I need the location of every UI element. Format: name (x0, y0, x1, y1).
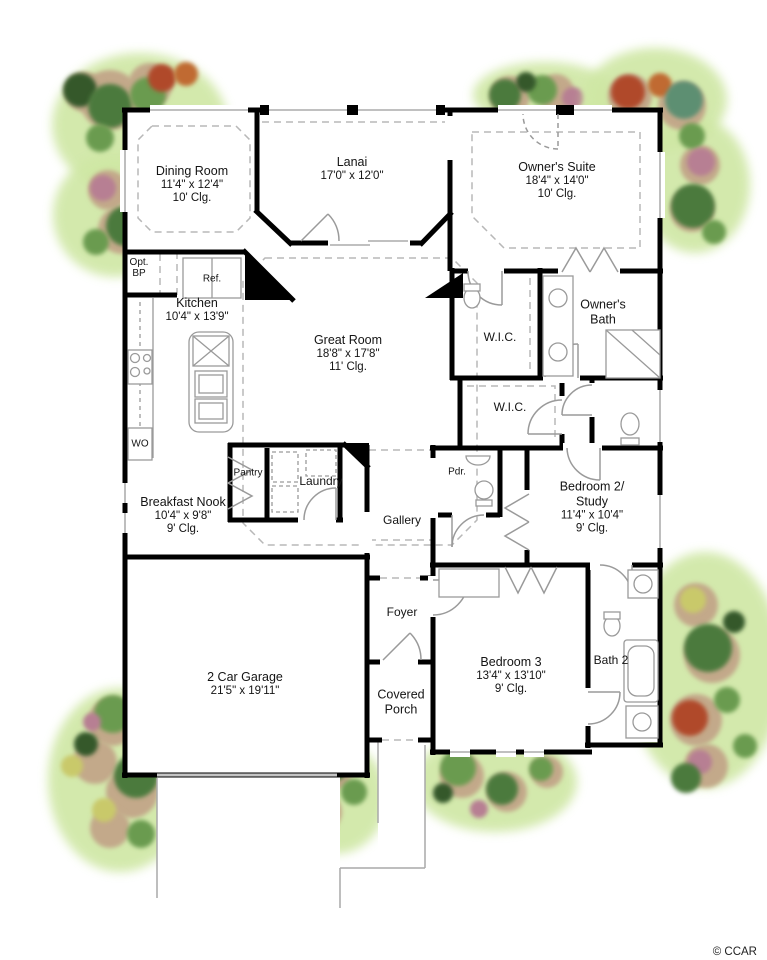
copyright-text: © CCAR (713, 946, 757, 958)
bath2-vanity-bottom (626, 706, 658, 738)
owners-shower (606, 330, 660, 378)
room-label-breakfast-nook: Breakfast Nook 10'4" x 9'8" 9' Clg. (140, 495, 225, 537)
room-label-gallery: Gallery (383, 513, 421, 527)
room-label-pantry: Pantry (234, 468, 263, 479)
kitchen-island (189, 332, 233, 432)
bath2-tub (624, 640, 658, 702)
owners-bath-vanity (543, 276, 573, 376)
cooktop (128, 350, 152, 384)
room-label-bath2: Bath 2 (594, 653, 629, 667)
bedroom3-closet-shelf (439, 569, 499, 597)
hall-wc-toilet (621, 413, 639, 445)
room-label-garage: 2 Car Garage 21'5" x 19'11" (207, 670, 283, 698)
room-label-bedroom3: Bedroom 3 13'4" x 13'10" 9' Clg. (476, 655, 545, 697)
room-label-wic-upper: W.I.C. (484, 330, 517, 344)
walkway-surface (378, 742, 425, 869)
bath2-toilet (604, 612, 620, 636)
floor-plan-drawing (0, 0, 767, 960)
walkway-apron (340, 868, 425, 908)
room-label-owners-suite: Owner's Suite 18'4" x 14'0" 10' Clg. (518, 160, 595, 202)
room-label-powder: Pdr. (448, 467, 466, 478)
room-label-ref: Ref. (203, 274, 221, 285)
room-label-dining: Dining Room 11'4" x 12'4" 10' Clg. (156, 164, 228, 206)
room-label-opt-bp: Opt. BP (130, 257, 149, 279)
room-label-great-room: Great Room 18'8" x 17'8" 11' Clg. (314, 333, 382, 375)
floor-plan: Dining Room 11'4" x 12'4" 10' Clg. Lanai… (0, 0, 767, 960)
room-label-kitchen: Kitchen 10'4" x 13'9" (165, 296, 228, 324)
room-label-lanai: Lanai 17'0" x 12'0" (320, 155, 383, 183)
room-label-foyer: Foyer (387, 605, 418, 619)
house-footprint (125, 110, 660, 775)
bath2-vanity-top (628, 570, 658, 598)
owners-wc-toilet (464, 284, 480, 308)
room-label-wic-lower: W.I.C. (494, 400, 527, 414)
room-label-bedroom2: Bedroom 2/ Study 11'4" x 10'4" 9' Clg. (560, 480, 625, 537)
room-label-wall-oven: WO (131, 439, 148, 450)
powder-toilet (475, 481, 493, 506)
driveway-surface (157, 775, 340, 908)
room-label-owners-bath: Owner's Bath (580, 297, 625, 327)
room-label-laundry: Laundry (299, 474, 342, 488)
room-label-covered-porch: Covered Porch (377, 687, 424, 717)
